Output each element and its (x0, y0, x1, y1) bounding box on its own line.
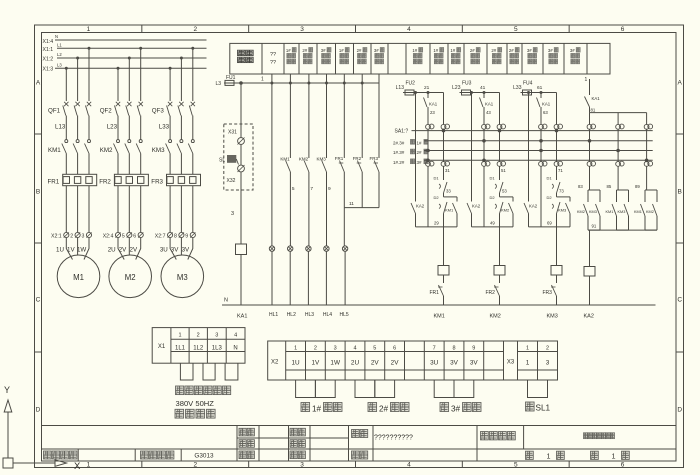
svg-text:2: 2 (314, 345, 317, 351)
svg-text:HL5: HL5 (340, 312, 349, 318)
svg-text:1#: 1# (286, 48, 291, 53)
svg-text:2#: 2# (417, 150, 423, 155)
svg-text:89: 89 (635, 184, 640, 189)
svg-text:1: 1 (87, 462, 91, 469)
svg-text:3V: 3V (470, 360, 479, 367)
svg-text:3#: 3# (374, 48, 379, 53)
svg-text:380V 50HZ: 380V 50HZ (176, 399, 215, 408)
svg-text:3V: 3V (450, 360, 459, 367)
svg-text:X31: X31 (228, 130, 237, 136)
svg-text:KA2: KA2 (472, 204, 481, 209)
svg-text:A: A (678, 79, 683, 86)
svg-text:KM3: KM3 (547, 314, 558, 320)
svg-text:C: C (36, 296, 41, 303)
svg-text:M1: M1 (73, 273, 84, 282)
svg-text:8: 8 (174, 234, 177, 240)
svg-text:3: 3 (300, 26, 304, 33)
svg-text:6: 6 (621, 26, 625, 33)
svg-text:1L2: 1L2 (193, 346, 204, 352)
svg-text:KA1: KA1 (429, 102, 438, 107)
svg-text:KM2: KM2 (501, 208, 510, 213)
svg-text:1V: 1V (311, 360, 320, 367)
svg-text:3: 3 (82, 234, 85, 240)
svg-text:1#: 1# (412, 48, 417, 53)
svg-text:1U: 1U (56, 247, 64, 254)
svg-text:1L3: 1L3 (212, 346, 223, 352)
svg-text:1#.3#: 1#.3# (393, 150, 405, 155)
svg-text:Y: Y (4, 385, 10, 395)
svg-text:HL4: HL4 (323, 312, 332, 318)
svg-text:KM3: KM3 (558, 208, 567, 213)
svg-text:1: 1 (178, 333, 181, 339)
svg-text:SL1: SL1 (536, 404, 551, 413)
svg-text:X: X (74, 461, 81, 472)
svg-text:D: D (36, 406, 41, 413)
svg-text:X1: X1 (158, 344, 166, 350)
svg-text:X1:4: X1:4 (43, 39, 54, 45)
svg-text:??: ?? (270, 60, 276, 66)
svg-text:QF3: QF3 (152, 108, 165, 115)
svg-text:X1:1: X1:1 (43, 47, 54, 53)
svg-text:QF1: QF1 (48, 108, 61, 115)
svg-text:3U: 3U (430, 360, 439, 367)
svg-text:1: 1 (585, 77, 588, 83)
svg-text:61: 61 (537, 85, 543, 91)
svg-text:1: 1 (547, 452, 551, 461)
svg-text:2U: 2U (108, 247, 116, 254)
svg-text:1: 1 (261, 77, 264, 83)
svg-text:11: 11 (349, 201, 354, 207)
svg-text:1W: 1W (77, 247, 86, 254)
svg-text:31: 31 (445, 168, 450, 173)
svg-text:L33: L33 (513, 85, 522, 91)
svg-text:KM2: KM2 (490, 314, 501, 320)
svg-text:SA1:?: SA1:? (395, 129, 409, 135)
svg-text:KA2: KA2 (416, 204, 425, 209)
svg-text:KM2: KM2 (646, 210, 654, 214)
svg-text:3: 3 (300, 462, 304, 469)
svg-text:FR2: FR2 (486, 290, 496, 296)
svg-text:QF2: QF2 (100, 108, 113, 115)
svg-text:KM1: KM1 (634, 210, 642, 214)
svg-text:9: 9 (472, 345, 475, 351)
svg-text:2U: 2U (351, 360, 360, 367)
svg-text:L1: L1 (57, 42, 62, 47)
svg-text:6: 6 (393, 345, 396, 351)
svg-text:X3: X3 (507, 360, 515, 366)
svg-text:D1: D1 (434, 176, 440, 181)
svg-text:3#: 3# (321, 48, 326, 53)
svg-text:5: 5 (122, 234, 125, 240)
svg-text:2V: 2V (371, 360, 380, 367)
svg-text:83: 83 (578, 184, 583, 189)
svg-text:FR2: FR2 (99, 178, 111, 185)
svg-text:41: 41 (480, 85, 486, 91)
svg-text:FU4: FU4 (523, 81, 533, 87)
svg-text:KA1: KA1 (237, 314, 247, 320)
svg-text:2#: 2# (509, 48, 514, 53)
svg-text:2V: 2V (391, 360, 400, 367)
svg-text:X2:1: X2:1 (51, 234, 62, 240)
svg-text:1: 1 (526, 360, 530, 367)
svg-text:4: 4 (407, 462, 411, 469)
svg-text:??????????: ?????????? (374, 435, 413, 442)
svg-text:7: 7 (310, 186, 313, 192)
svg-text:4: 4 (407, 26, 411, 33)
svg-text:KM1: KM1 (434, 314, 445, 320)
svg-text:3: 3 (215, 333, 218, 339)
svg-text:KM3: KM3 (618, 210, 626, 214)
svg-text:2: 2 (193, 26, 197, 33)
svg-text:C: C (677, 296, 682, 303)
svg-text:D2: D2 (547, 195, 553, 200)
svg-text:FR1: FR1 (48, 178, 60, 185)
svg-text:KM1: KM1 (445, 208, 454, 213)
svg-text:KA1: KA1 (542, 102, 551, 107)
svg-text:8: 8 (452, 345, 455, 351)
svg-text:FR3: FR3 (543, 290, 553, 296)
svg-text:23: 23 (430, 110, 435, 115)
svg-text:X2:7: X2:7 (155, 234, 166, 240)
svg-text:X2: X2 (271, 360, 279, 366)
svg-text:??: ?? (270, 52, 276, 58)
svg-text:1: 1 (612, 452, 616, 461)
svg-text:D1: D1 (547, 176, 553, 181)
svg-text:4: 4 (353, 345, 356, 351)
svg-text:63: 63 (543, 110, 548, 115)
svg-text:2#: 2# (357, 48, 362, 53)
svg-text:9: 9 (328, 186, 331, 192)
svg-text:FR2: FR2 (353, 156, 362, 161)
svg-text:X1:2: X1:2 (43, 57, 54, 63)
svg-text:L2: L2 (57, 52, 62, 57)
svg-text:KA1: KA1 (592, 96, 601, 101)
svg-text:2V: 2V (130, 247, 138, 254)
svg-text:3#: 3# (570, 48, 575, 53)
svg-text:D1: D1 (490, 176, 496, 181)
svg-text:A: A (36, 79, 41, 86)
svg-text:KM3: KM3 (589, 210, 597, 214)
svg-text:HL1: HL1 (269, 312, 278, 318)
svg-text:69: 69 (547, 221, 552, 226)
svg-text:73: 73 (559, 189, 564, 194)
svg-text:N: N (55, 34, 58, 39)
svg-text:6: 6 (621, 462, 625, 469)
svg-text:X1:3: X1:3 (43, 67, 54, 73)
svg-text:1#: 1# (339, 48, 344, 53)
svg-text:SL: SL (219, 158, 225, 164)
svg-text:91: 91 (592, 224, 597, 229)
svg-text:3: 3 (231, 211, 234, 217)
svg-text:D2: D2 (434, 195, 440, 200)
svg-text:FU3: FU3 (462, 81, 472, 87)
svg-text:1#.2#: 1#.2# (393, 160, 405, 165)
svg-text:3#: 3# (548, 48, 553, 53)
svg-text:33: 33 (446, 189, 451, 194)
svg-text:5: 5 (373, 345, 376, 351)
svg-text:3#: 3# (417, 160, 423, 165)
svg-text:KM1: KM1 (606, 210, 614, 214)
svg-text:N: N (233, 346, 237, 352)
svg-text:FR3: FR3 (151, 178, 163, 185)
svg-text:L3: L3 (216, 81, 222, 87)
svg-text:1#: 1# (450, 48, 455, 53)
svg-text:L13: L13 (55, 123, 66, 130)
svg-text:HL2: HL2 (287, 312, 296, 318)
svg-text:53: 53 (502, 189, 507, 194)
svg-text:2#: 2# (491, 48, 496, 53)
svg-text:71: 71 (558, 168, 563, 173)
svg-text:FR1: FR1 (335, 156, 344, 161)
svg-text:L3: L3 (57, 62, 62, 67)
svg-text:7: 7 (433, 345, 436, 351)
svg-text:29: 29 (434, 221, 439, 226)
svg-text:1W: 1W (330, 360, 341, 367)
svg-text:N: N (224, 298, 228, 304)
svg-text:KM1: KM1 (48, 147, 61, 154)
svg-text:M3: M3 (177, 273, 188, 282)
svg-text:2#: 2# (302, 48, 307, 53)
svg-text:3: 3 (546, 360, 550, 367)
svg-text:L23: L23 (107, 123, 118, 130)
svg-text:FU2: FU2 (406, 81, 416, 87)
svg-text:D2: D2 (490, 195, 496, 200)
svg-text:1#: 1# (312, 405, 322, 414)
svg-text:1: 1 (87, 26, 91, 33)
svg-text:3U: 3U (160, 247, 168, 254)
svg-text:3: 3 (334, 345, 337, 351)
svg-text:4: 4 (234, 333, 237, 339)
svg-text:KM3: KM3 (152, 147, 165, 154)
svg-text:6: 6 (133, 234, 136, 240)
svg-text:L23: L23 (452, 85, 461, 91)
svg-text:FR3: FR3 (370, 156, 379, 161)
svg-text:KM2: KM2 (100, 147, 113, 154)
svg-text:X32: X32 (227, 178, 236, 184)
svg-text:1: 1 (294, 345, 297, 351)
svg-text:5: 5 (514, 462, 518, 469)
svg-text:5: 5 (514, 26, 518, 33)
svg-text:2: 2 (70, 234, 73, 240)
svg-text:21: 21 (424, 85, 430, 91)
svg-text:2: 2 (546, 345, 549, 351)
svg-text:M2: M2 (125, 273, 136, 282)
svg-text:5: 5 (292, 186, 295, 192)
svg-text:3V: 3V (182, 247, 190, 254)
svg-text:1: 1 (526, 345, 529, 351)
svg-text:L33: L33 (159, 123, 170, 130)
svg-text:3#: 3# (451, 405, 461, 414)
svg-text:B: B (678, 188, 682, 195)
svg-text:9: 9 (185, 234, 188, 240)
svg-text:2#: 2# (379, 405, 389, 414)
svg-text:KA2: KA2 (584, 314, 594, 320)
svg-text:1#: 1# (433, 48, 438, 53)
svg-text:KA1: KA1 (485, 102, 494, 107)
svg-text:51: 51 (501, 168, 506, 173)
svg-text:2#.3#: 2#.3# (393, 140, 405, 145)
svg-text:1U: 1U (292, 360, 301, 367)
svg-text:KA2: KA2 (529, 204, 538, 209)
svg-text:L13: L13 (396, 85, 405, 91)
svg-text:G3013: G3013 (194, 453, 214, 460)
svg-text:2: 2 (197, 333, 200, 339)
svg-text:81: 81 (591, 108, 596, 113)
svg-text:FR1: FR1 (430, 290, 440, 296)
svg-text:43: 43 (486, 110, 491, 115)
svg-text:49: 49 (490, 221, 495, 226)
svg-text:HL3: HL3 (305, 312, 314, 318)
svg-text:1L1: 1L1 (175, 346, 186, 352)
svg-text:B: B (36, 188, 40, 195)
svg-text:D: D (677, 406, 682, 413)
svg-text:X2:4: X2:4 (103, 234, 114, 240)
svg-text:3#: 3# (527, 48, 532, 53)
svg-text:KM2: KM2 (577, 210, 585, 214)
svg-text:2#: 2# (470, 48, 475, 53)
svg-text:1#: 1# (417, 140, 423, 145)
svg-text:85: 85 (607, 184, 612, 189)
svg-text:2: 2 (193, 462, 197, 469)
